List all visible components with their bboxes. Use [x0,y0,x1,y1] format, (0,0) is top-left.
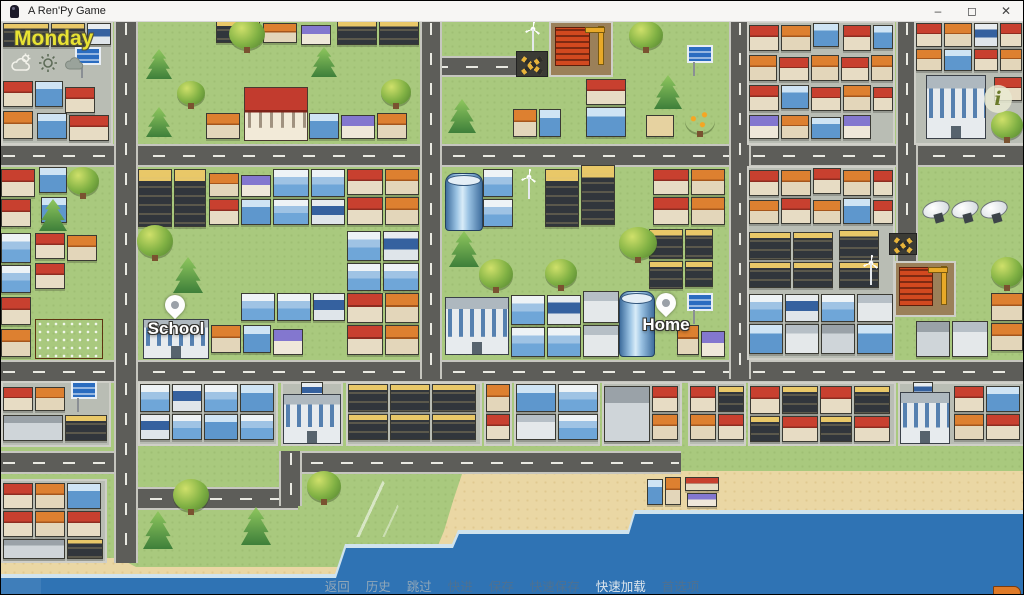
building [348,414,388,440]
quick-menu-item-save[interactable]: 保存 [489,576,514,595]
game-window: School Home i Monday [0,0,1024,595]
building [873,200,893,224]
building [781,170,811,196]
building [793,232,833,260]
tree [143,511,173,549]
building [986,414,1020,440]
building [3,111,33,139]
building [67,539,103,559]
window-titlebar: A Ren'Py Game – ◻ ✕ [1,1,1023,22]
building [581,165,615,225]
building [1000,49,1022,71]
civic-building [900,392,950,444]
building [35,233,65,259]
building [138,169,172,227]
building [67,511,101,537]
building [483,169,513,197]
tree [629,21,663,49]
building [347,263,381,291]
building [1,199,31,227]
building [821,294,855,322]
playground [646,115,674,137]
building [511,295,545,325]
building [785,294,819,322]
building [67,483,101,509]
quick-menu-item-quick-save[interactable]: 快速保存 [530,576,580,595]
building [749,55,777,81]
building [39,167,67,193]
building [558,414,598,440]
water-tower [445,173,483,231]
building [944,49,972,71]
building [916,49,942,71]
building [337,21,377,45]
mountain [337,471,415,537]
building [390,384,430,412]
road [279,451,302,506]
building [821,324,855,354]
building [749,170,779,196]
close-button[interactable]: ✕ [989,1,1023,21]
building [685,261,713,287]
road [114,21,138,563]
building [841,57,869,81]
tree [654,75,682,109]
building [383,231,419,261]
building [586,79,626,105]
building [263,23,297,43]
building [843,85,871,111]
building [781,115,809,139]
tree [146,107,172,137]
building [385,293,419,323]
tree [381,79,411,105]
building [311,199,345,225]
building [811,55,839,81]
building [390,414,430,440]
building [379,21,419,45]
building [690,414,716,440]
road-sign [687,293,713,311]
building [691,169,725,195]
building [1,265,31,293]
minimize-button[interactable]: – [921,1,955,21]
tree [173,479,209,511]
road [420,21,442,379]
tree [479,259,513,289]
building [843,115,871,139]
quick-menu-item-history[interactable]: 历史 [366,576,391,595]
building [204,384,238,412]
tree [448,99,476,133]
city-map[interactable]: School Home i Monday [1,1,1023,594]
tree [991,257,1023,287]
building [486,384,510,412]
building [309,113,339,139]
building [241,175,271,197]
building [781,85,809,109]
building [65,87,95,113]
wind-turbine [519,169,539,199]
building [685,229,713,259]
building [782,386,818,414]
road-sign [687,45,713,63]
building [813,168,841,194]
building [35,263,65,289]
building [811,117,841,139]
building [3,539,65,559]
building [347,325,383,355]
building [483,199,513,227]
building [749,294,783,322]
tree [173,257,203,293]
building [820,386,852,414]
building [273,169,309,197]
building [209,173,239,197]
building [67,235,97,261]
building [385,169,419,195]
quick-menu: 返回 历史 跳过 快进 保存 快速保存 快速加载 首选项 [1,577,1023,594]
building [820,416,852,442]
building [206,113,240,139]
building [974,49,998,71]
map-pin-home[interactable] [652,289,680,317]
building [781,25,811,51]
beach-shop [687,493,717,507]
building [854,416,890,442]
quick-menu-item-fast-forward[interactable]: 快进 [448,576,473,595]
tree [991,111,1023,139]
road [1,451,118,474]
building [69,115,109,141]
building [811,87,841,111]
wind-turbine [523,21,543,51]
building [37,113,67,139]
road-sign [71,381,97,399]
road [1,144,1024,167]
building [385,197,419,225]
building [652,414,678,440]
building [545,169,579,227]
building [843,198,871,224]
building [779,57,809,81]
building [873,87,893,111]
building [750,386,780,414]
tree [307,471,341,501]
building [347,293,383,323]
building [854,386,890,414]
tree [619,227,657,259]
beach-shop [647,479,663,505]
building [653,197,689,225]
building [35,387,65,411]
building [301,25,331,45]
building [944,23,972,47]
renpy-app-icon [10,5,19,18]
satellite-dish [978,197,1010,221]
railroad-crossing [889,233,917,255]
building [1,169,35,197]
building [140,384,170,412]
building [341,115,375,139]
building [974,23,998,47]
building [749,85,779,111]
building [3,387,33,411]
beach-shop [685,477,719,491]
building [511,327,545,357]
building [385,325,419,355]
building [240,384,274,412]
building [718,386,744,412]
cloudy-icon [63,51,87,75]
tree [146,49,172,79]
quick-menu-item-skip[interactable]: 跳过 [407,576,432,595]
building [313,293,345,321]
satellite-dish [920,197,952,221]
quick-menu-item-preferences[interactable]: 首选项 [662,576,700,595]
building [35,511,65,537]
building [652,386,678,412]
construction-site [549,21,613,77]
building [140,414,170,440]
festival-building [35,319,103,359]
building [954,414,984,440]
tree [229,19,265,49]
building [3,511,33,537]
building [240,414,274,440]
road [279,451,681,474]
hospital-building [283,394,341,444]
building [35,81,63,107]
building [986,386,1020,412]
partly-cloudy-icon [9,51,33,75]
tree [137,225,173,257]
tree [67,167,99,195]
satellite-dish [949,197,981,221]
tree [177,81,205,105]
building [172,384,202,412]
quick-menu-item-back[interactable]: 返回 [325,576,350,595]
building [991,293,1023,321]
building [1000,23,1022,47]
building [690,386,716,412]
building [653,169,689,195]
building [857,324,893,354]
building [649,261,683,289]
map-pin-school-label[interactable]: School [131,319,221,339]
building [347,197,383,225]
building [3,483,33,509]
building [785,324,819,354]
fruit-tree [685,107,715,133]
building [586,107,626,137]
building [35,483,65,509]
building [749,200,779,224]
building [347,169,383,195]
road [1,360,1024,383]
building [843,25,871,51]
building [1,233,31,263]
info-icon[interactable]: i [984,85,1012,113]
building [916,23,942,47]
building [691,197,725,225]
building [486,414,510,440]
tree [241,507,271,545]
building [873,25,893,49]
building [583,325,619,357]
building [954,386,984,412]
day-of-week-label: Monday [14,27,93,51]
building [749,115,779,139]
building [347,231,381,261]
building [781,198,811,224]
building [277,293,311,321]
building [65,415,107,441]
building [558,384,598,412]
building [273,329,303,355]
building [547,327,581,357]
building [871,55,893,81]
map-pin-home-label[interactable]: Home [621,315,711,335]
beach-shop [665,477,681,505]
building [547,295,581,325]
building [750,416,780,442]
building [583,291,619,323]
weather-forecast [9,51,87,75]
building [348,384,388,412]
building [273,199,309,225]
building [857,294,893,322]
building [432,414,476,440]
building [311,169,345,197]
building [539,109,561,137]
building [1,329,31,357]
tree [311,47,337,77]
building [718,414,744,440]
building [749,232,791,260]
police-station [926,75,986,139]
building [172,414,202,440]
building [916,321,950,357]
building [241,293,275,321]
manor-building [244,87,308,141]
building [516,384,556,412]
building [241,199,271,225]
building [782,416,818,442]
tree [545,259,577,287]
building [383,263,419,291]
building [3,415,63,441]
campus-building [445,297,509,355]
map-pin-school[interactable] [161,291,189,319]
sunny-icon [36,51,60,75]
building [793,262,833,288]
building [813,23,839,47]
building [749,262,791,288]
building [873,170,893,196]
tree [449,231,479,267]
construction-site [894,261,956,317]
building [604,386,650,442]
building [749,324,783,354]
building [749,25,779,51]
maximize-button[interactable]: ◻ [955,1,989,21]
building [952,321,988,357]
building [813,200,841,224]
window-title: A Ren'Py Game [28,5,106,17]
building [432,384,476,412]
building [843,170,871,196]
building [1,297,31,325]
building [3,81,33,107]
building [243,325,271,353]
building [516,414,556,440]
building [377,113,407,139]
building [204,414,238,440]
building [174,169,206,227]
building [209,199,239,225]
building [513,109,537,137]
wind-turbine [861,255,881,285]
quick-menu-item-quick-load[interactable]: 快速加载 [596,576,646,595]
building [991,323,1023,351]
railroad-crossing [516,51,548,77]
